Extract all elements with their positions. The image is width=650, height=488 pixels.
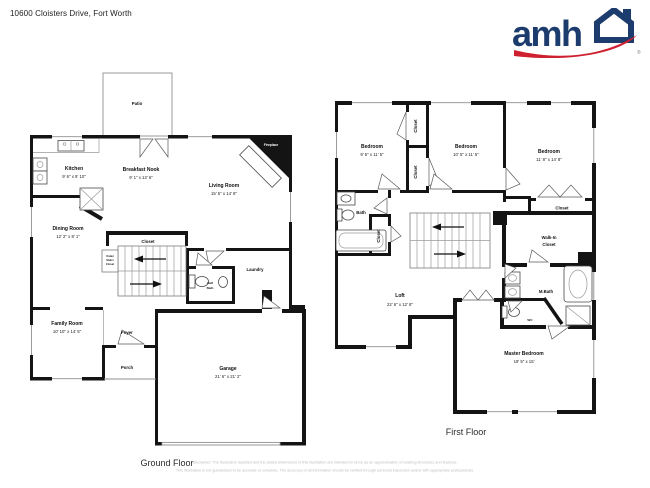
bath-closet-label: Closet [376,229,381,243]
walk-in-closet-door [529,250,548,262]
mbath-sink-icon [505,286,520,298]
svg-text:Bath: Bath [207,286,214,290]
wc-label: WC [527,318,533,322]
floorplan-page: 10600 Cloisters Drive, Fort Worth amh ® [0,0,650,488]
ground-floor-title: Ground Floor [140,458,193,468]
disclaimer-line2: This illustration is not guaranteed to b… [176,469,474,473]
loft-dims: 22' 6" x 12' 8" [387,302,413,307]
garage-dims: 21' 6" x 21' 2" [215,374,241,379]
floor-plan-svg: Patio Kitchen 9' 6" x 9' 10" Breakfast N… [0,0,650,488]
master-arch [462,290,478,300]
svg-text:Stairs: Stairs [106,258,114,262]
master-bedroom-dims: 18' 5" x 15' [514,359,535,364]
svg-text:Closet: Closet [542,242,556,247]
ground-floor-plan: Patio Kitchen 9' 6" x 9' 10" Breakfast N… [30,73,306,468]
mbath-tub-icon [564,266,592,302]
patio-door [140,139,153,157]
bath-label: Bath [356,210,366,215]
master-bedroom-label: Master Bedroom [504,351,544,357]
kitchen-label: Kitchen [65,166,83,172]
under-stairs-closet-label: Under [106,254,114,258]
stairs-closet-label: Closet [141,239,155,244]
bedroom2-label: Bedroom [455,144,478,150]
garage-label: Garage [219,366,236,372]
ground-floor-stairs [102,246,186,296]
first-floor-title: First Floor [446,427,487,437]
bedroom3-closet-door [538,185,560,197]
dining-room-label: Dining Room [52,226,84,232]
master-arch [478,290,494,300]
sink-icon [219,277,228,288]
bedroom3-closet-label: Closet [555,206,569,211]
wc-toilet-icon [502,306,507,318]
bedroom1-label: Bedroom [361,144,384,150]
patio-label: Patio [132,101,143,106]
half-bath-label: Half [207,281,214,285]
toilet-icon [189,275,195,288]
family-room-dims: 10' 10" x 14' 5" [53,329,82,334]
loft-label: Loft [395,293,405,299]
laundry-label: Laundry [247,267,265,272]
bedroom3-door [506,168,520,190]
bedroom2-dims: 10' 5" x 11' 5" [453,152,479,157]
bedroom3-closet-door [560,185,582,197]
first-floor-plan: Bedroom 9' 5" x 11' 5" Bedroom 10' 5" x … [335,101,596,437]
dining-room-dims: 12' 2" x 8' 1" [56,234,80,239]
breakfast-nook-dims: 9' 1" x 12' 6" [129,175,153,180]
range-icon [33,158,47,171]
bedroom3-dims: 11' 8" x 14' 8" [536,157,562,162]
walk-in-closet-label: Walk-In [541,235,556,240]
svg-text:Closet: Closet [106,262,114,266]
kitchen-dims: 9' 6" x 9' 10" [62,174,86,179]
breakfast-nook-label: Breakfast Nook [123,167,160,173]
master-door [548,326,570,339]
bath-toilet-icon [337,209,342,221]
closet2-label: Closet [413,165,418,179]
bedroom2-door [430,174,452,189]
bath-closet-door [391,226,401,242]
bedroom1-dims: 9' 5" x 11' 5" [360,152,384,157]
foyer-label: Foyer [121,330,133,335]
closet1-door [397,112,406,140]
living-room-dims: 15' 5" x 14' 8" [211,191,237,196]
closet1-label: Closet [413,119,418,133]
porch-label: Porch [121,365,134,370]
mbath-label: M.Bath [539,289,554,294]
bath-door [374,198,387,214]
bedroom3-label: Bedroom [538,149,561,155]
fireplace-label: Fireplace [264,143,279,147]
first-floor-stairs [410,213,490,268]
living-room-label: Living Room [209,183,240,189]
bedroom1-door [378,174,400,189]
garage-door [162,442,280,445]
oven-icon [33,171,47,184]
family-room-label: Family Room [51,321,83,327]
disclaimer-line1: Disclaimer: The floorplans depicted and … [193,461,458,465]
patio-door [155,139,168,157]
